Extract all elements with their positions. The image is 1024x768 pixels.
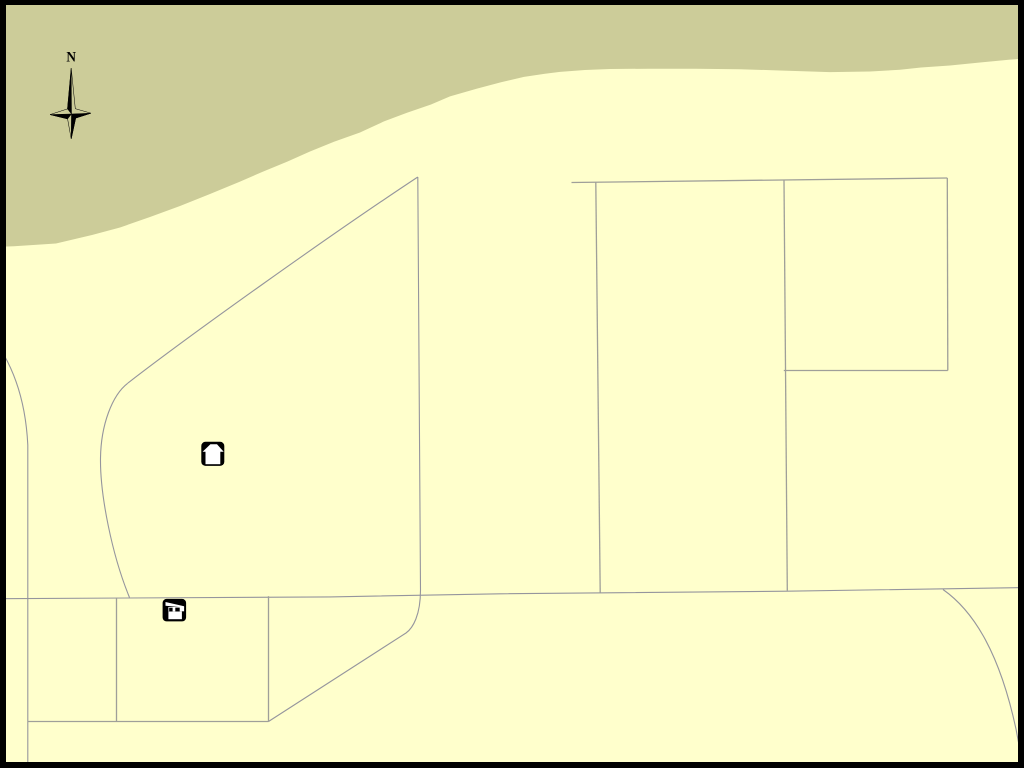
svg-text:N: N: [66, 50, 76, 66]
